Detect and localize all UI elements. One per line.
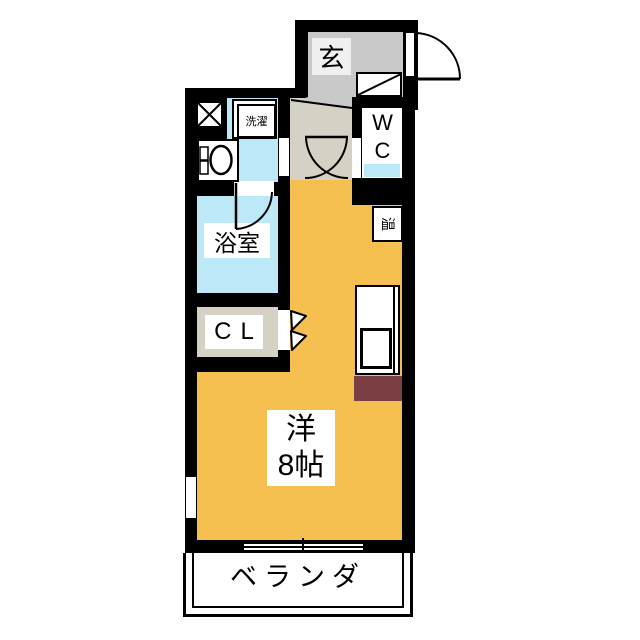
main-room-label: 洋 8帖 [267, 410, 335, 486]
entrance-door-arc [417, 33, 460, 79]
main-room-name-text: 洋 [286, 412, 316, 448]
entrance-label-text: 玄 [318, 38, 344, 75]
shoe-cabinet [356, 72, 402, 97]
water-heater-box: 温 [372, 206, 403, 242]
hallway-floor [290, 98, 352, 180]
closet-opening [278, 310, 290, 350]
main-room-floor-upper-left [290, 180, 352, 205]
side-window [186, 477, 196, 518]
washroom-door [279, 138, 289, 176]
closet-label: CL [205, 315, 263, 349]
vent-box [196, 101, 223, 128]
kitchen-counter-divider [393, 287, 395, 373]
veranda: ベランダ [183, 553, 413, 617]
bathroom-label-text: 浴室 [214, 224, 260, 258]
refrigerator-space [354, 376, 402, 401]
wc-door [352, 138, 361, 178]
entrance-label: 玄 [312, 38, 351, 75]
main-room-size-text: 8帖 [278, 448, 325, 484]
washing-machine-box: 洗濯 [232, 99, 277, 139]
bathroom-label: 浴室 [204, 223, 270, 258]
laundry-label-text: 洗濯 [246, 113, 268, 129]
veranda-label-text: ベランダ [230, 562, 366, 592]
wc-label-text: WC [371, 110, 393, 166]
wc-label: WC [362, 110, 402, 166]
entrance-door [404, 31, 416, 78]
closet-label-text: CL [205, 318, 263, 346]
veranda-label: ベランダ [186, 555, 410, 594]
kitchen-sink [360, 328, 392, 369]
water-heater-label-text: 温 [378, 217, 398, 231]
floor-plan: 玄 洗濯 浴室 WC 温 CL [0, 0, 640, 640]
bathroom-doorway [234, 181, 274, 196]
washing-machine-inner: 洗濯 [237, 104, 276, 138]
